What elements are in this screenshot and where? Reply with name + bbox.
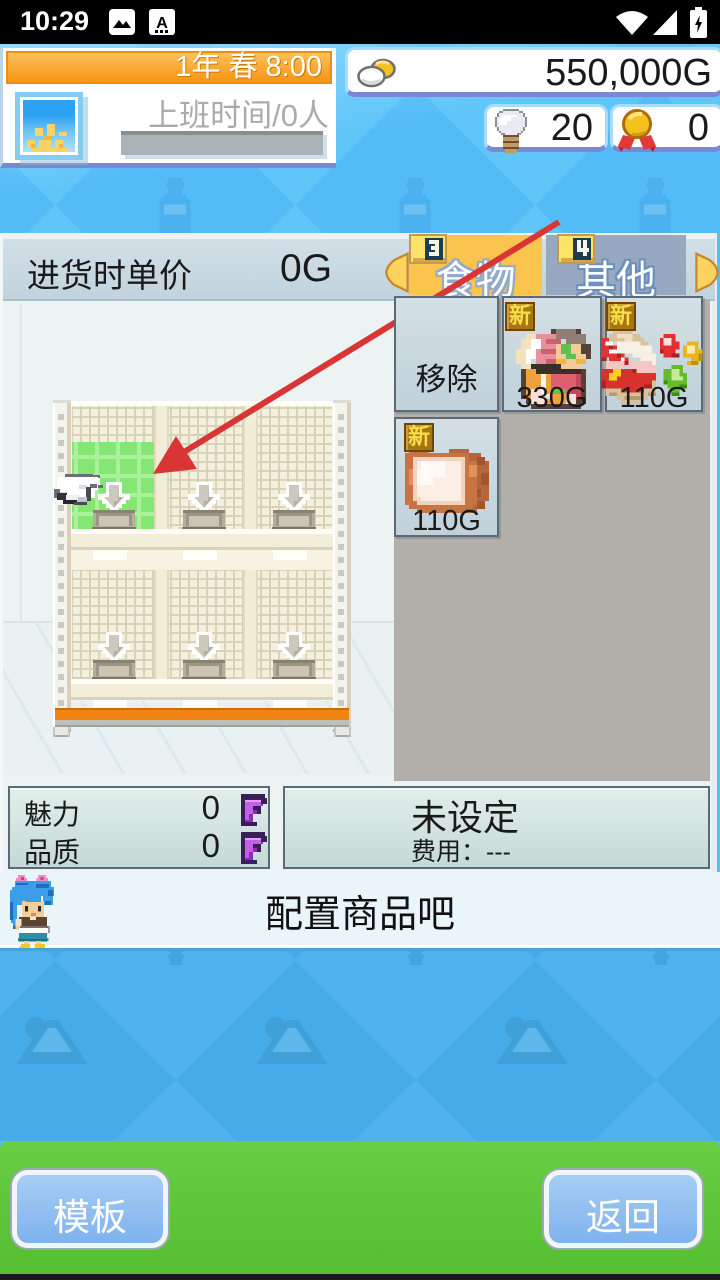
svg-text:A: A <box>156 15 168 32</box>
